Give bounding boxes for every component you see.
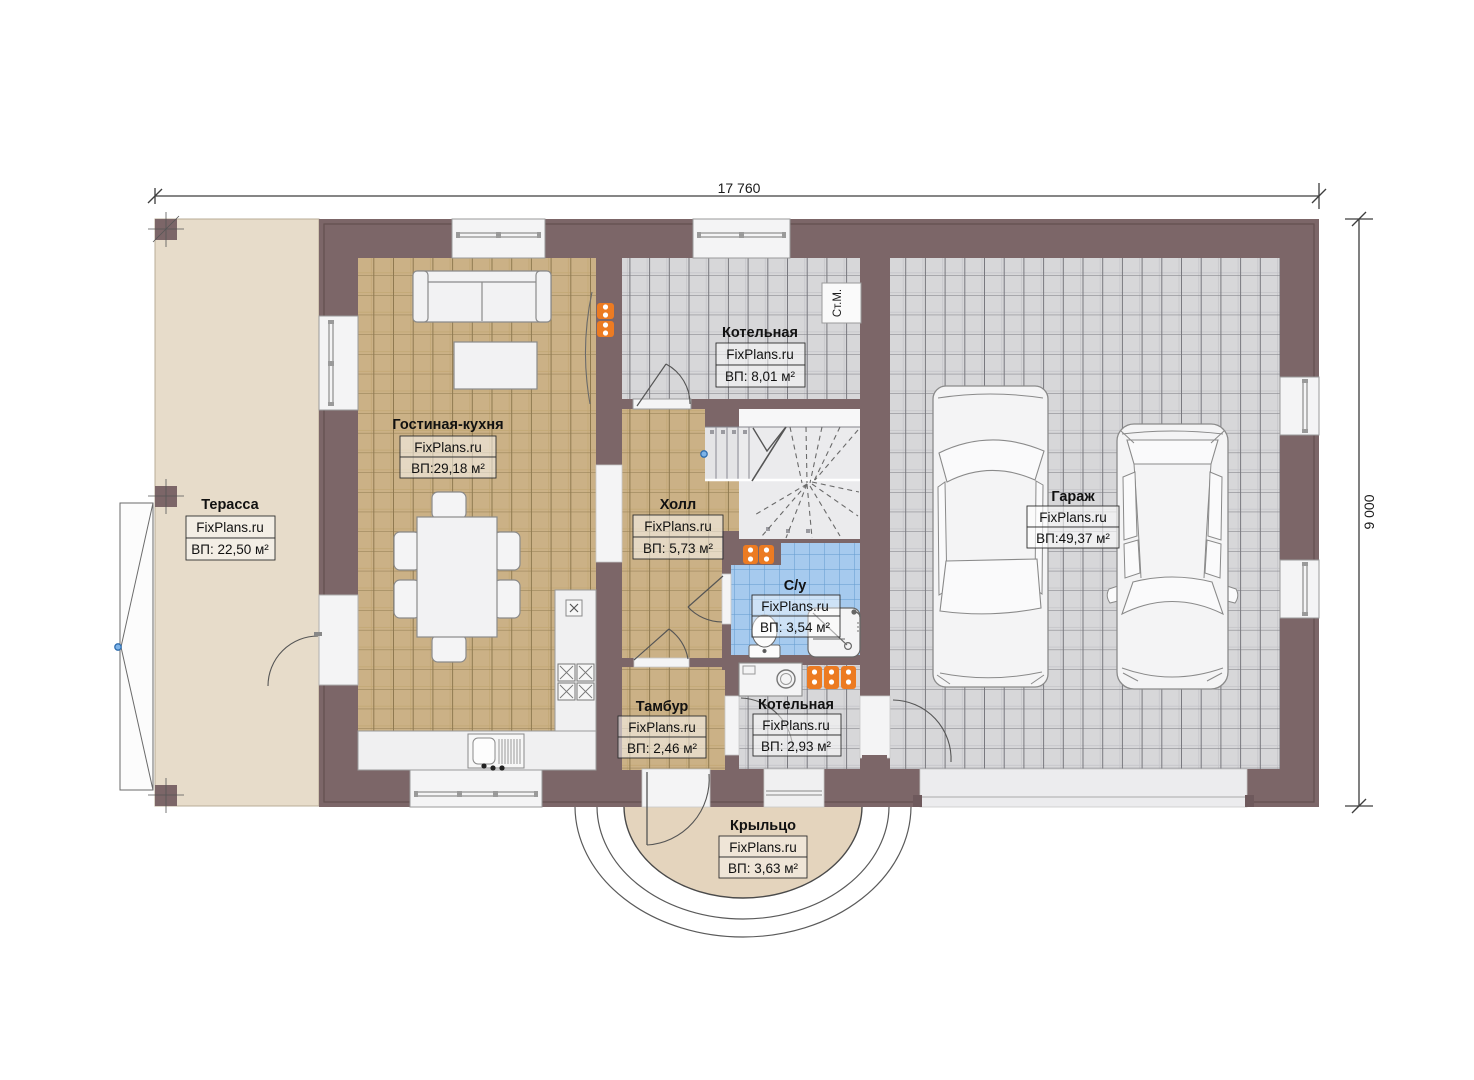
svg-text:С/у: С/у — [784, 578, 807, 594]
svg-text:ВП: 2,46 м²: ВП: 2,46 м² — [627, 741, 698, 756]
svg-text:FixPlans.ru: FixPlans.ru — [644, 519, 712, 534]
svg-text:ВП: 8,01 м²: ВП: 8,01 м² — [725, 369, 796, 384]
svg-text:FixPlans.ru: FixPlans.ru — [726, 347, 794, 362]
svg-text:ВП:29,18 м²: ВП:29,18 м² — [411, 461, 485, 476]
svg-text:FixPlans.ru: FixPlans.ru — [761, 599, 829, 614]
svg-text:FixPlans.ru: FixPlans.ru — [729, 840, 797, 855]
svg-text:ВП: 3,54 м²: ВП: 3,54 м² — [760, 620, 831, 635]
svg-text:FixPlans.ru: FixPlans.ru — [414, 440, 482, 455]
svg-text:FixPlans.ru: FixPlans.ru — [196, 520, 264, 535]
svg-text:Котельная: Котельная — [722, 325, 798, 341]
svg-text:FixPlans.ru: FixPlans.ru — [1039, 510, 1107, 525]
svg-text:ВП: 2,93 м²: ВП: 2,93 м² — [761, 739, 832, 754]
svg-text:Котельная: Котельная — [758, 697, 834, 713]
svg-text:ВП:49,37 м²: ВП:49,37 м² — [1036, 531, 1110, 546]
svg-text:ВП: 5,73 м²: ВП: 5,73 м² — [643, 541, 714, 556]
svg-text:ВП: 22,50 м²: ВП: 22,50 м² — [191, 542, 269, 557]
svg-text:17 760: 17 760 — [718, 180, 761, 196]
svg-text:FixPlans.ru: FixPlans.ru — [628, 720, 696, 735]
svg-text:Холл: Холл — [660, 497, 696, 513]
svg-text:ВП: 3,63 м²: ВП: 3,63 м² — [728, 861, 799, 876]
svg-text:9 000: 9 000 — [1361, 494, 1377, 529]
svg-text:Гараж: Гараж — [1051, 489, 1095, 505]
svg-text:Крыльцо: Крыльцо — [730, 818, 796, 834]
svg-text:FixPlans.ru: FixPlans.ru — [762, 718, 830, 733]
svg-text:Терасса: Терасса — [201, 497, 259, 513]
svg-text:Ст.М.: Ст.М. — [832, 289, 844, 317]
svg-text:Тамбур: Тамбур — [636, 699, 689, 715]
svg-text:Гостиная-кухня: Гостиная-кухня — [392, 417, 503, 433]
